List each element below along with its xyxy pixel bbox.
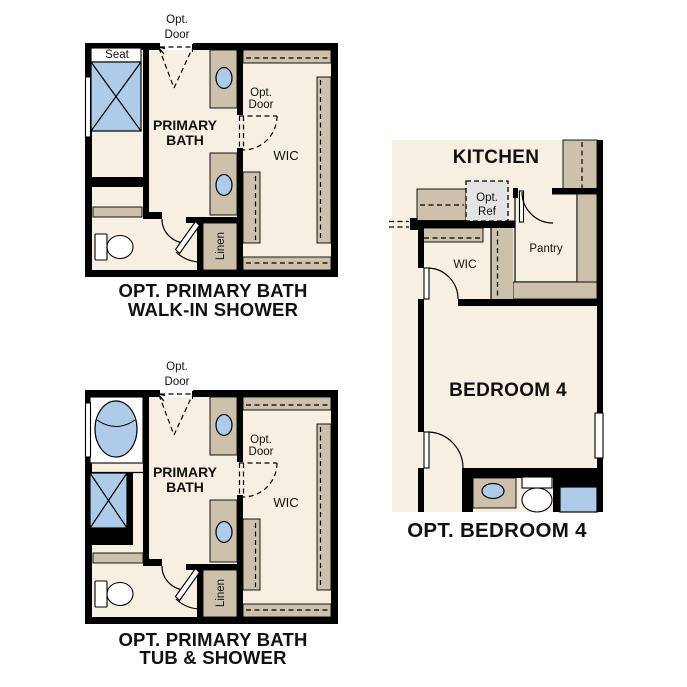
sink	[216, 415, 232, 436]
caption-plan3: OPT. BEDROOM 4	[407, 519, 587, 542]
wall	[552, 188, 597, 195]
caption-plan1-line1: OPT. PRIMARY BATH	[118, 280, 307, 301]
window	[595, 413, 603, 458]
bathtub	[90, 397, 143, 463]
label-opt-door: Door	[165, 29, 190, 41]
cabinet	[93, 553, 143, 563]
wic-shelf	[421, 228, 483, 242]
kitchen-cabinet	[563, 140, 597, 189]
label-opt-door: Opt.	[166, 14, 188, 26]
room-label-wic: WIC	[273, 495, 298, 510]
plan-bedroom4: KITCHEN Opt. Ref Pantry WIC BEDROOM 4 OP…	[389, 140, 603, 542]
label-opt-door: Door	[249, 446, 274, 458]
toilet	[95, 234, 133, 260]
label-opt-door: Door	[249, 99, 274, 111]
label-linen: Linen	[215, 232, 227, 260]
room-label-kitchen: KITCHEN	[453, 147, 540, 168]
label-seat: Seat	[105, 49, 129, 61]
shower	[560, 487, 597, 512]
window	[86, 77, 91, 137]
room-label-wic: WIC	[453, 257, 477, 271]
label-opt-door: Opt.	[166, 361, 188, 373]
label-opt-door: Opt.	[250, 87, 272, 99]
label-opt-ref: Opt.	[476, 192, 498, 204]
plan-walk-in-shower: Opt. Door Seat PRIMARY BATH Opt. Door WI…	[85, 14, 338, 320]
wall	[462, 468, 473, 512]
door-leaf	[520, 191, 524, 222]
sink	[216, 522, 232, 543]
caption-plan1-line2: WALK-IN SHOWER	[128, 299, 298, 320]
door-leaf	[424, 268, 429, 299]
closet-fill	[577, 194, 597, 282]
toilet	[522, 488, 552, 512]
wall	[553, 478, 560, 512]
caption-plan2-line2: TUB & SHOWER	[139, 647, 286, 668]
room-label-wic: WIC	[273, 148, 298, 163]
room-label-primary: PRIMARY	[153, 117, 218, 133]
wall	[513, 188, 518, 198]
floorplan-canvas: Opt. Door Seat PRIMARY BATH Opt. Door WI…	[0, 0, 687, 687]
toilet	[95, 581, 133, 607]
plan-tub-shower: Opt. Door PRIMARY BATH Opt. Door WIC Lin…	[85, 361, 338, 668]
label-linen: Linen	[215, 579, 227, 607]
label-opt-door: Door	[165, 376, 190, 388]
wall	[560, 478, 597, 487]
sink	[482, 484, 504, 499]
door-leaf	[424, 432, 429, 468]
room-label-primary: PRIMARY	[153, 464, 218, 480]
room-label-bath: BATH	[166, 132, 204, 148]
toilet-tank	[522, 477, 552, 488]
wall	[458, 299, 603, 306]
label-opt-door: Opt.	[250, 434, 272, 446]
room-label-bath: BATH	[166, 479, 204, 495]
room-label-pantry: Pantry	[529, 243, 562, 255]
cabinet	[93, 207, 142, 217]
window	[86, 403, 91, 457]
room-label-bedroom4: BEDROOM 4	[449, 380, 567, 401]
wic-pantry-wall	[491, 228, 513, 299]
sink	[216, 175, 232, 196]
floorplan-page: Opt. Door Seat PRIMARY BATH Opt. Door WI…	[0, 0, 687, 687]
bathroom-fixtures	[473, 477, 597, 512]
wall-fill	[513, 282, 597, 299]
label-opt-ref: Ref	[478, 206, 497, 218]
sink	[216, 68, 232, 89]
